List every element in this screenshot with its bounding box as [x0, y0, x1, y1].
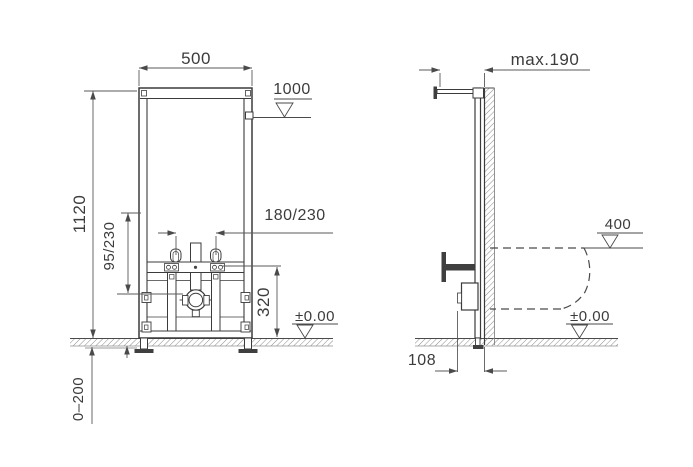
dim-label-drain-wall-distance: 108 — [398, 353, 446, 369]
top-wall-bracket-rod — [437, 90, 473, 94]
dim-label-rim-level: 400 — [595, 217, 641, 232]
dim-label-drain-offset: 95/230 — [102, 215, 120, 277]
dim-label-max-wall-distance: max.190 — [504, 51, 586, 68]
dim-label-floor-level-side: ±0.00 — [562, 309, 618, 324]
drain-outlet — [458, 293, 462, 303]
dim-label-frame-height: 1120 — [71, 191, 89, 237]
drain-bend-box — [462, 283, 479, 310]
top-bracket-connector — [246, 112, 254, 119]
dim-label-top-fixing-level: 1000 — [264, 82, 320, 98]
side-frame — [434, 87, 484, 350]
front-frame — [135, 88, 258, 353]
side-floor — [415, 339, 618, 347]
installation-frame-technical-drawing: 500 1120 1000 180/230 95/230 320 ±0.00 0… — [0, 0, 693, 467]
level-mark-floor-side — [566, 324, 613, 338]
level-mark-1000 — [253, 99, 312, 118]
fixing-bolt-washer — [442, 252, 447, 282]
fixing-bolt — [446, 264, 475, 271]
level-mark-400 — [584, 233, 643, 248]
dim-label-bolt-spacing: 180/230 — [256, 208, 334, 224]
dim-label-frame-width: 500 — [168, 50, 224, 67]
side-foot — [473, 345, 484, 349]
dim-label-height-adjustment: 0–200 — [71, 371, 89, 427]
bidet-outline — [490, 248, 590, 309]
top-bracket-block — [473, 88, 484, 98]
dim-label-floor-level-front: ±0.00 — [287, 309, 343, 324]
rod-end-cap — [434, 87, 438, 100]
front-floor — [70, 339, 333, 349]
level-mark-floor-front — [292, 324, 338, 338]
dim-label-connection-height: 320 — [255, 281, 273, 323]
side-wall — [485, 88, 495, 345]
side-dimensions — [419, 70, 590, 372]
